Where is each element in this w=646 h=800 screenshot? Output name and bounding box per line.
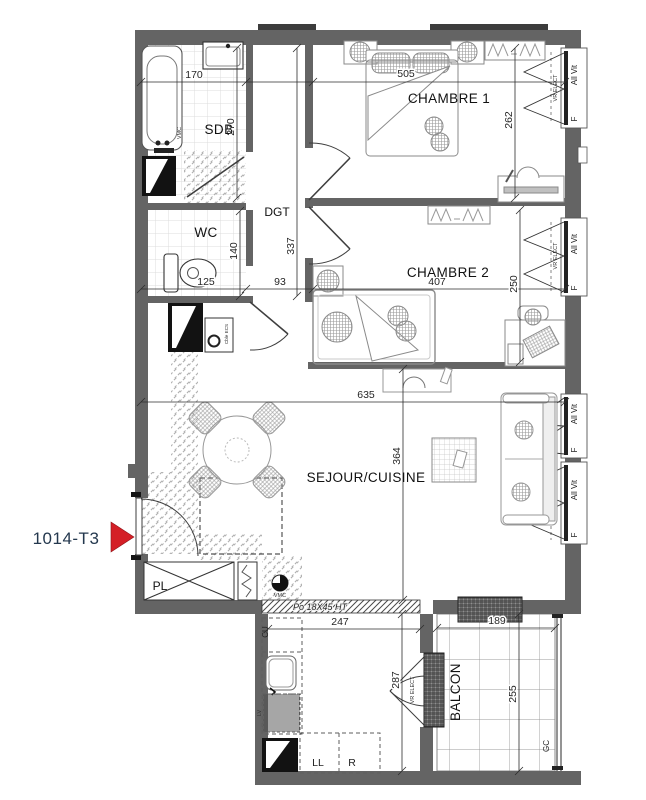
dim-bal-w: 189 (488, 615, 506, 627)
dim-cu-d: 287 (390, 671, 402, 689)
entry-hatch-ext (198, 534, 262, 560)
room-label-wc: WC (194, 225, 217, 240)
furniture-cuisine: LV LL R CU (257, 618, 380, 773)
unit-marker: 1014-T3 (33, 522, 134, 552)
wall-balcony-divider-top (420, 614, 433, 653)
wall-stub-top-1 (258, 24, 316, 31)
wall-balcony-bottom (433, 771, 581, 785)
window-glazing-bar (564, 465, 568, 541)
entry-jamb-top (131, 492, 141, 497)
wall-wc-top (141, 203, 246, 210)
window-glazing-bar (564, 51, 568, 125)
chambre2-door-swing (309, 249, 350, 264)
window-fixed-label: F (570, 447, 579, 452)
dim-line-cu-v (398, 610, 406, 775)
wall-sdb-right (246, 45, 253, 152)
floor-plan-canvas: Po 18X45 HT VR ELECT All Vit F (0, 0, 646, 800)
balcony-door-shutter-label: VR ELECT (410, 676, 416, 704)
dim-dgt-w: 93 (274, 276, 286, 288)
room-label-chambre2: CHAMBRE 2 (407, 265, 489, 280)
window-fixed-label: F (570, 285, 579, 290)
dim-ch2-d: 250 (508, 275, 520, 293)
room-label-balcon: BALCON (448, 663, 463, 721)
wall-stub-top-2 (430, 24, 548, 31)
vmc-tub-label: VMC (177, 127, 183, 139)
wall-dgt-chambre1 (305, 45, 313, 148)
bathtub-icon (142, 46, 182, 150)
wc-door-swing (250, 334, 288, 350)
dim-dgt-d: 337 (285, 237, 297, 255)
bathtub-tap-icon (156, 141, 161, 146)
bathtub-spout (154, 148, 174, 153)
chair-ch1 (517, 167, 539, 178)
window-shutter-label: VR ELECT (553, 74, 559, 102)
dim-cu-w: 247 (331, 616, 349, 628)
furniture-chambre1 (344, 41, 564, 202)
floor-plan-drawing: Po 18X45 HT VR ELECT All Vit F (0, 0, 646, 800)
fridge-label: R (348, 757, 356, 769)
pillow (322, 312, 352, 342)
dim-ch1-w: 505 (397, 68, 415, 80)
room-label-chambre1: CHAMBRE 1 (408, 91, 490, 106)
window-fixed-label: F (570, 116, 579, 121)
bathtub-tap-icon (165, 141, 170, 146)
balcony-railing (557, 614, 561, 771)
gc-label: GC (542, 740, 551, 752)
window-glazing-label: All Vit (570, 64, 579, 85)
wall-left-step (128, 464, 135, 478)
window-shutter-label: VR ELECT (553, 242, 559, 270)
sofa-back (543, 397, 555, 521)
chambre1-door-swing (309, 143, 350, 158)
unit-label: 1014-T3 (33, 529, 100, 548)
dim-sejour-d: 364 (391, 447, 403, 465)
washbasin-tap (226, 44, 230, 48)
pouf (431, 133, 449, 151)
dim-sdb-w: 170 (185, 69, 203, 81)
wall-right-2 (565, 128, 581, 218)
room-label-dgt: DGT (264, 205, 290, 219)
wall-right-4 (565, 458, 581, 462)
shutter-box-door (424, 653, 444, 727)
chambre1-door-leaf (309, 158, 350, 200)
window-glazing-label: All Vit (570, 403, 579, 424)
desk-shelf (504, 187, 558, 193)
wall-chambre2-left (305, 258, 313, 302)
wall-pl-bottom (135, 600, 262, 614)
pouf (396, 321, 416, 341)
chair-ch2-seat (525, 309, 541, 325)
sofa-pillow (515, 421, 533, 439)
wall-utility-notch (578, 147, 587, 163)
unit-marker-arrow-icon (111, 522, 134, 552)
dim-bal-d: 255 (507, 685, 519, 703)
room-label-pl: PL (153, 579, 168, 593)
ecs-label: Cble ECS (224, 324, 229, 344)
room-label-sejour: SEJOUR/CUISINE (307, 470, 426, 485)
dim-ch1-d: 262 (503, 111, 515, 129)
beam-group: Po 18X45 HT (262, 600, 420, 613)
toilet-tank (164, 254, 178, 292)
ecs-outlet (209, 336, 220, 347)
window-glazing-bar (564, 397, 568, 455)
lv-label: LV (257, 710, 263, 717)
entry-jamb-bottom (131, 555, 141, 560)
rug (432, 438, 476, 482)
room-label-sdb: SDB (205, 122, 234, 137)
entry-door-leaf (136, 498, 142, 555)
sofa-pillow (512, 483, 530, 501)
vmc-label: VMC (274, 593, 286, 599)
sofa-armrest (503, 515, 549, 524)
pouf (425, 117, 443, 135)
wc-door-leaf (250, 302, 288, 334)
window-glazing-label: All Vit (570, 233, 579, 254)
beam-label: Po 18X45 HT (293, 602, 349, 612)
wall-balcony-divider-bottom (420, 727, 433, 785)
railing-post (552, 614, 563, 618)
wall-wc-right (246, 210, 253, 266)
window-glazing-bar (564, 221, 568, 293)
dim-sejour-w: 635 (357, 389, 375, 401)
dim-wc-w: 125 (197, 276, 215, 288)
dim-wc-d: 140 (228, 242, 240, 260)
vent-fan-icon (457, 42, 477, 62)
railing-post (552, 766, 563, 770)
chambre2-door-leaf (309, 207, 350, 249)
washer-label: LL (312, 757, 324, 769)
wall-right-3 (565, 296, 581, 394)
window-glazing-label: All Vit (570, 479, 579, 500)
dishwasher-lv (263, 694, 300, 732)
window-chambre2: VR ELECT All Vit F (524, 218, 587, 296)
window-fixed-label: F (570, 532, 579, 537)
